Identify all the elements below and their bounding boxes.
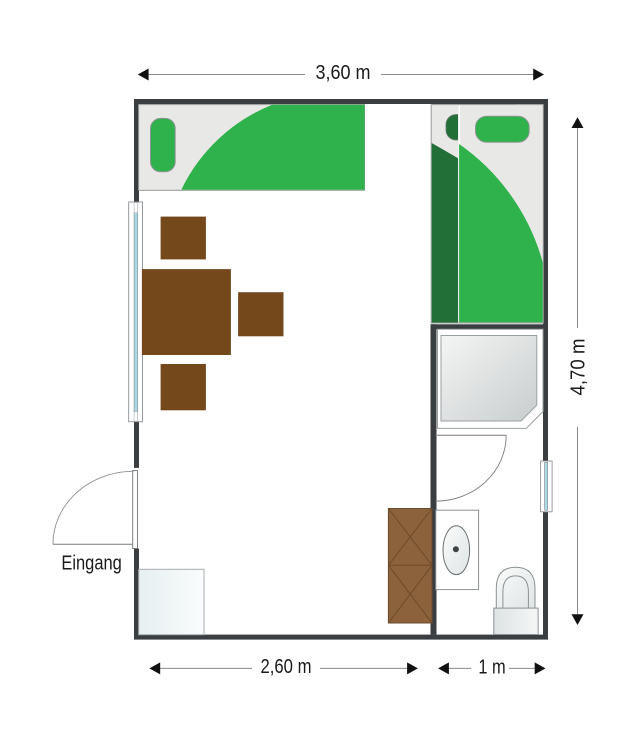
svg-text:1 m: 1 m <box>478 656 505 678</box>
svg-text:2,60 m: 2,60 m <box>261 656 312 678</box>
svg-text:4,70 m: 4,70 m <box>568 339 590 396</box>
svg-text:Eingang: Eingang <box>61 552 121 574</box>
svg-text:3,60 m: 3,60 m <box>316 62 371 84</box>
